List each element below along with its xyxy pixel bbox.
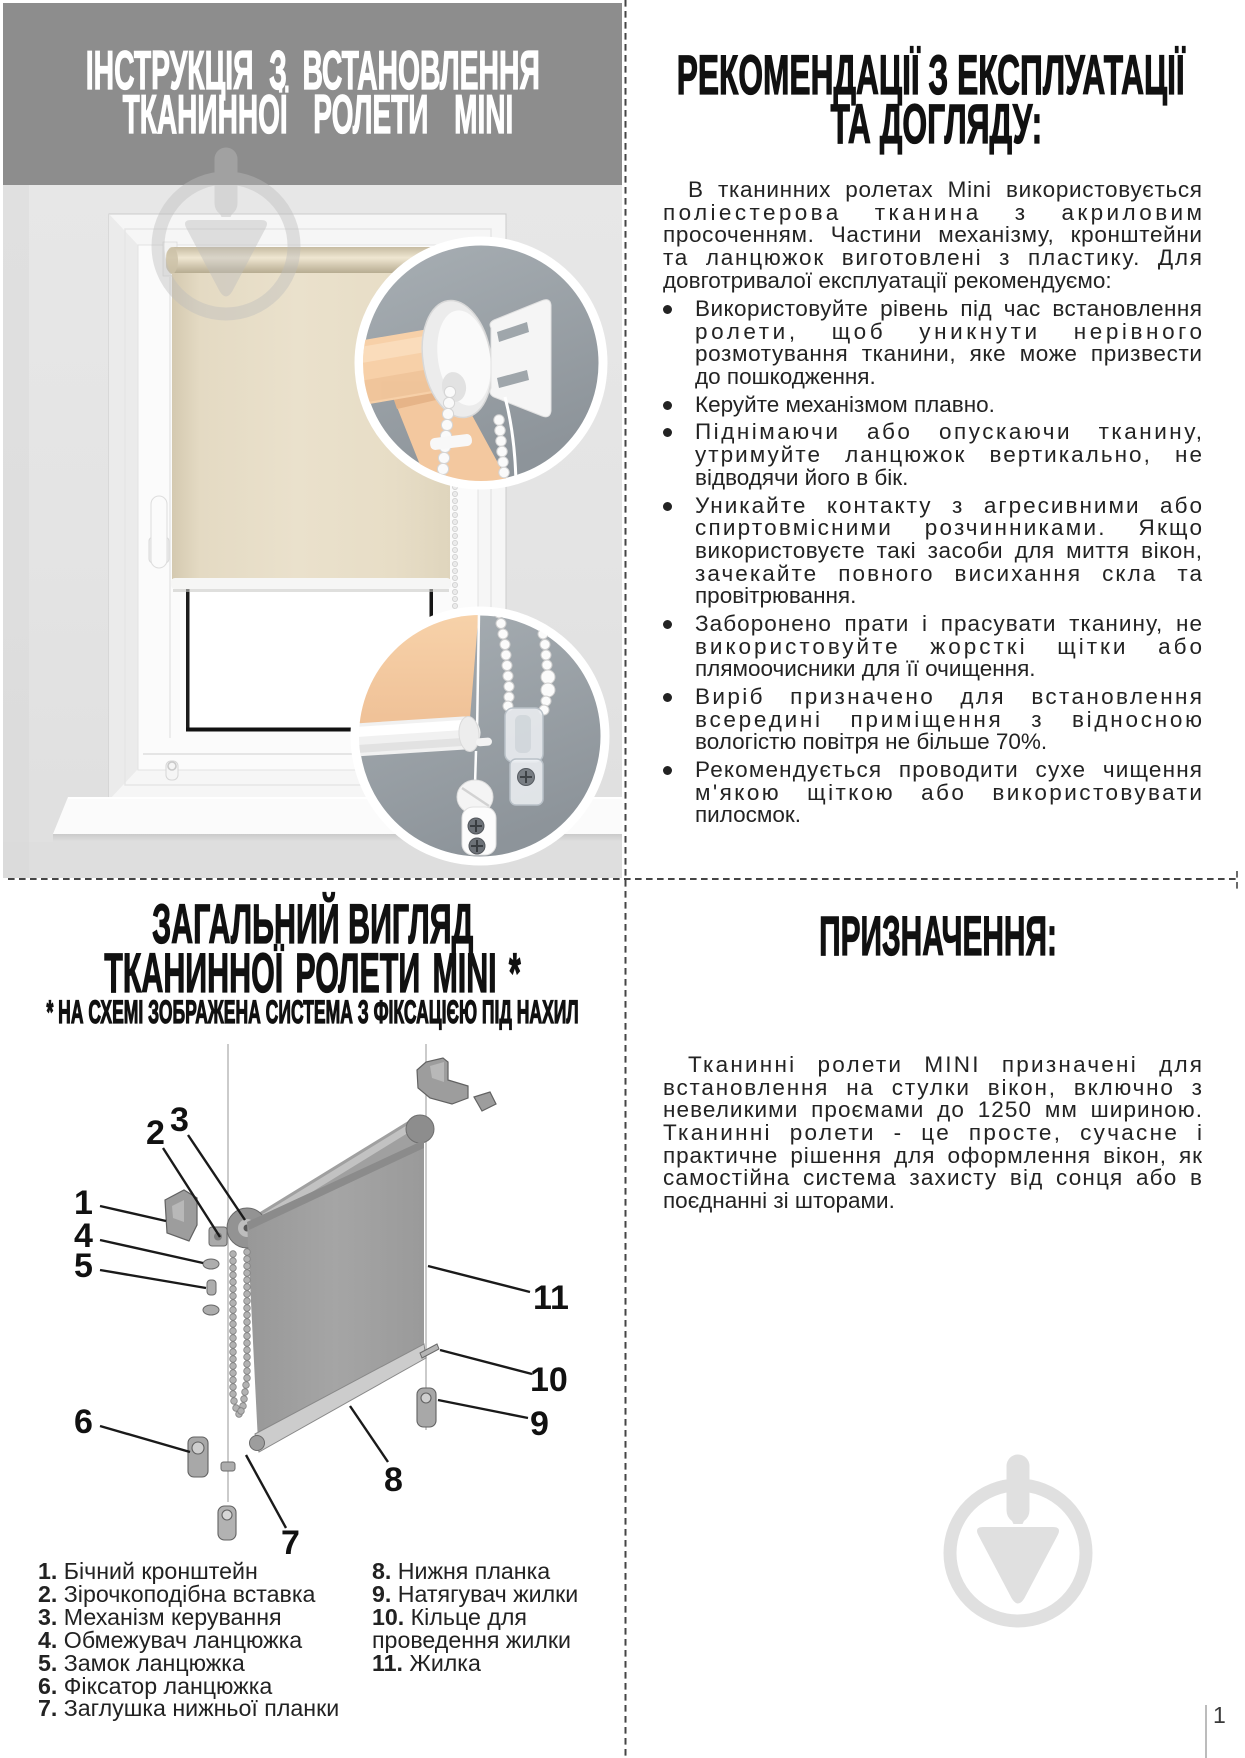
- svg-text:5: 5: [74, 1247, 93, 1285]
- svg-text:11: 11: [533, 1279, 569, 1317]
- svg-text:7: 7: [281, 1524, 300, 1560]
- svg-text:3: 3: [170, 1101, 189, 1139]
- svg-text:6: 6: [74, 1403, 93, 1441]
- svg-text:9: 9: [530, 1405, 549, 1443]
- svg-text:10: 10: [530, 1361, 568, 1399]
- svg-text:2: 2: [146, 1114, 165, 1152]
- svg-text:8: 8: [384, 1461, 403, 1499]
